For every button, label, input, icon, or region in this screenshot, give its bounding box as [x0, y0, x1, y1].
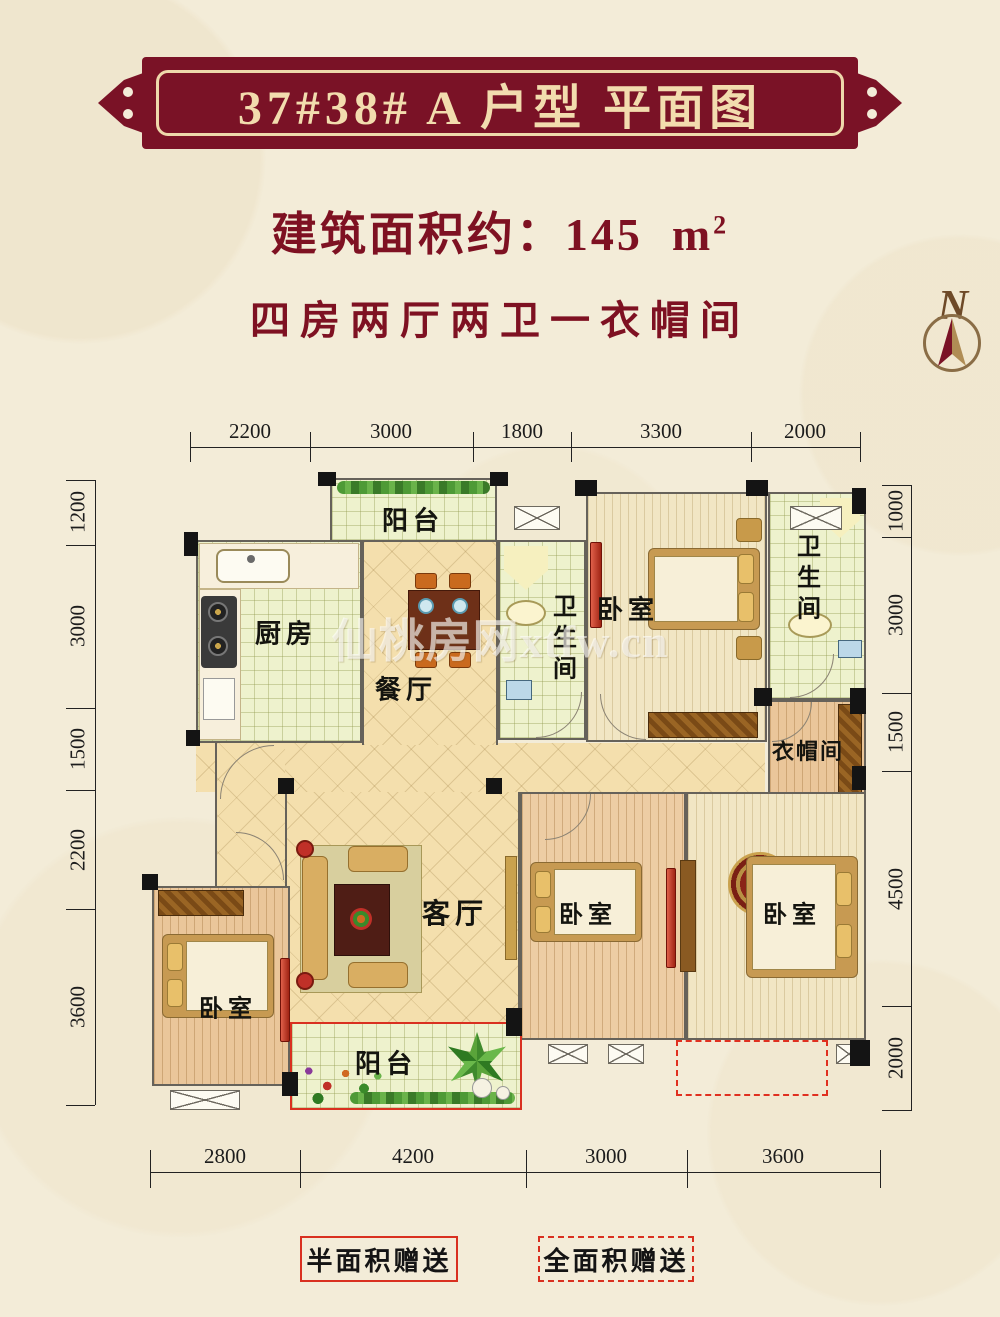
column [850, 688, 866, 714]
window-icon [548, 1044, 588, 1064]
bed-pillow [836, 924, 852, 958]
dim-label: 1800 [501, 419, 543, 444]
dim-tick [882, 1110, 912, 1111]
area-exponent: 2 [713, 211, 729, 240]
dim-label: 3600 [66, 986, 91, 1028]
dim-label: 2200 [229, 419, 271, 444]
area-unit: m [672, 209, 713, 260]
window-icon [170, 1090, 240, 1110]
flower-pot [296, 840, 314, 858]
balcony-north-plants [337, 481, 490, 494]
dim-label: 3300 [640, 419, 682, 444]
bed-pillow [167, 979, 183, 1007]
room-label-balcony-north: 阳台 [382, 501, 444, 538]
living-tv-console [505, 856, 517, 960]
column [754, 688, 772, 706]
full-gift-area-outline [676, 1040, 828, 1096]
room-label-bedroom-southeast: 卧室 [763, 895, 821, 930]
column [506, 1008, 522, 1036]
column [318, 472, 336, 486]
bedroom-west-door-panel [280, 958, 290, 1042]
bedroom-south-door-panel [666, 868, 676, 968]
room-label-dining: 餐厅 [375, 670, 437, 707]
kitchen-cabinet [203, 678, 235, 720]
bed-pillow [535, 906, 551, 933]
dim-label: 4500 [884, 868, 909, 910]
stove-burner [208, 602, 228, 622]
bed-pillow [738, 554, 754, 584]
dim-label: 2000 [784, 419, 826, 444]
watermark: 仙桃房网xtfw.cn [332, 605, 669, 671]
dim-label: 3000 [370, 419, 412, 444]
dim-tick [882, 771, 912, 772]
legend-half-gift: 半面积赠送 [300, 1236, 458, 1282]
living-sofa-long [302, 856, 328, 980]
column [850, 1040, 870, 1066]
dim-label: 3000 [884, 594, 909, 636]
building-area-line: 建筑面积约：145 m2 [0, 198, 1000, 264]
bed-pillow [836, 872, 852, 906]
dim-label: 3000 [66, 605, 91, 647]
banner-ornament-left [98, 72, 146, 134]
dim-tick [66, 1105, 95, 1106]
bath-a-washer [506, 680, 532, 700]
dim-tick [66, 909, 95, 910]
dim-label: 1000 [884, 490, 909, 532]
bedroom-west-wardrobe [158, 890, 244, 916]
flower-pot [296, 972, 314, 990]
column [142, 874, 158, 890]
dim-line-left [95, 480, 96, 1105]
bedroom-north-cabinet [648, 712, 758, 738]
room-label-bedroom-west: 卧室 [199, 989, 257, 1024]
window-icon [790, 506, 842, 530]
legend-full-gift: 全面积赠送 [538, 1236, 694, 1282]
dim-tick [860, 432, 861, 462]
dim-label: 1200 [66, 491, 91, 533]
banner-ornament-right [854, 72, 902, 134]
column [186, 730, 200, 746]
column [486, 778, 502, 794]
dim-tick [473, 432, 474, 462]
table-flowers [350, 908, 372, 930]
bath-b-washer [838, 640, 862, 658]
dim-tick [571, 432, 572, 462]
room-label-bath-b: 卫生间 [789, 534, 824, 627]
dining-chair [415, 573, 437, 589]
column [278, 778, 294, 794]
nightstand [736, 636, 762, 660]
dim-label: 2000 [884, 1037, 909, 1079]
column [184, 532, 198, 556]
area-text: 建筑面积约： [271, 209, 565, 260]
dim-tick [882, 537, 912, 538]
dim-tick [66, 790, 95, 791]
kitchen-sink [216, 549, 290, 583]
window-icon [514, 506, 560, 530]
nightstand [736, 518, 762, 542]
dim-tick [526, 1150, 527, 1188]
column [282, 1072, 298, 1096]
area-value: 145 [565, 209, 643, 260]
room-label-balcony-south: 阳台 [355, 1044, 417, 1081]
dim-tick [190, 432, 191, 462]
bed-pillow [535, 871, 551, 898]
dim-tick [150, 1150, 151, 1188]
dim-label: 1500 [884, 711, 909, 753]
pebble [472, 1078, 492, 1098]
dim-label: 3000 [585, 1144, 627, 1169]
dim-line-top [190, 447, 860, 448]
compass-needle-icon [923, 314, 981, 372]
dim-tick [880, 1150, 881, 1188]
page-title: 37#38# A 户型 平面图 [142, 57, 858, 149]
living-armchair [348, 962, 408, 988]
kitchen-faucet [247, 555, 255, 563]
pebble [496, 1086, 510, 1100]
dim-label: 2200 [66, 829, 91, 871]
dim-label: 3600 [762, 1144, 804, 1169]
room-label-kitchen: 厨房 [255, 614, 317, 651]
dim-label: 4200 [392, 1144, 434, 1169]
bed-pillow [738, 592, 754, 622]
column [490, 472, 508, 486]
dim-tick [300, 1150, 301, 1188]
dim-tick [882, 1006, 912, 1007]
dim-line-right [911, 485, 912, 1110]
bedroom-southeast-door-leaf [680, 860, 696, 972]
dim-tick [310, 432, 311, 462]
dim-label: 1500 [66, 728, 91, 770]
column [852, 766, 866, 790]
living-armchair [348, 846, 408, 872]
window-icon [608, 1044, 644, 1064]
dim-tick [882, 485, 912, 486]
room-label-bedroom-south: 卧室 [559, 895, 617, 930]
stove-burner [208, 636, 228, 656]
dim-tick [751, 432, 752, 462]
dim-tick [687, 1150, 688, 1188]
dim-label: 2800 [204, 1144, 246, 1169]
dim-tick [66, 480, 95, 481]
dining-chair [449, 573, 471, 589]
column [746, 480, 768, 496]
column [852, 488, 866, 514]
dim-tick [66, 708, 95, 709]
column [575, 480, 597, 496]
room-label-living: 客厅 [422, 892, 488, 932]
dim-tick [66, 545, 95, 546]
floor-plan-page: 37#38# A 户型 平面图 建筑面积约：145 m2 四房两厅两卫一衣帽间 … [0, 0, 1000, 1317]
bed-pillow [167, 943, 183, 971]
dim-tick [882, 693, 912, 694]
layout-description: 四房两厅两卫一衣帽间 [0, 288, 1000, 346]
dim-line-bottom [150, 1172, 880, 1173]
